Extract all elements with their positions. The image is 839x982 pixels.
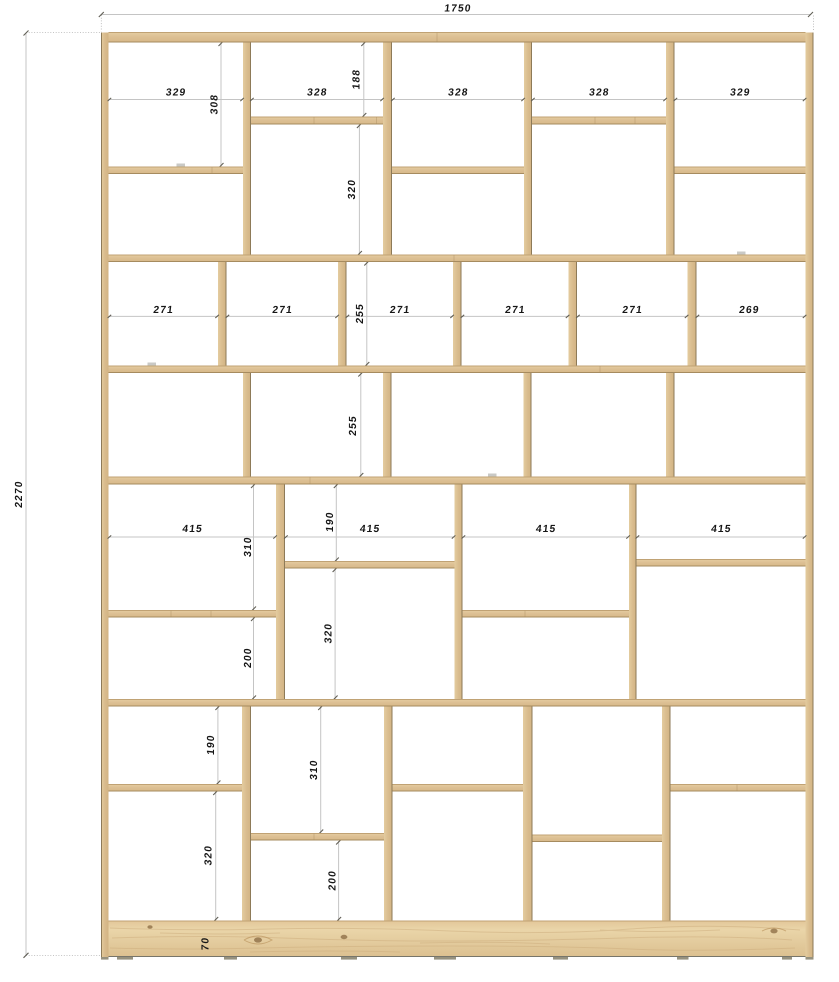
svg-text:415: 415 (710, 524, 732, 535)
svg-text:320: 320 (323, 622, 334, 644)
svg-text:328: 328 (588, 88, 610, 99)
svg-text:328: 328 (306, 88, 328, 99)
svg-text:320: 320 (347, 178, 358, 200)
svg-text:415: 415 (359, 524, 381, 535)
svg-text:271: 271 (504, 305, 526, 316)
svg-text:329: 329 (729, 88, 751, 99)
svg-text:188: 188 (352, 68, 363, 90)
svg-text:271: 271 (272, 305, 294, 316)
svg-text:190: 190 (325, 511, 336, 533)
svg-text:255: 255 (348, 415, 359, 437)
svg-text:200: 200 (243, 647, 254, 669)
svg-text:329: 329 (165, 88, 187, 99)
svg-text:269: 269 (738, 305, 760, 316)
svg-text:310: 310 (243, 536, 254, 558)
svg-text:200: 200 (328, 869, 339, 891)
svg-text:1750: 1750 (444, 4, 473, 15)
svg-text:328: 328 (447, 88, 469, 99)
svg-text:70: 70 (200, 936, 211, 951)
svg-text:415: 415 (535, 524, 557, 535)
svg-text:2270: 2270 (14, 480, 25, 509)
svg-text:255: 255 (355, 303, 366, 325)
svg-text:308: 308 (210, 93, 221, 115)
svg-text:271: 271 (622, 305, 644, 316)
svg-text:310: 310 (309, 759, 320, 781)
svg-text:271: 271 (153, 305, 175, 316)
svg-text:271: 271 (389, 305, 411, 316)
svg-text:415: 415 (182, 524, 204, 535)
svg-text:190: 190 (206, 734, 217, 756)
svg-text:320: 320 (204, 844, 215, 866)
